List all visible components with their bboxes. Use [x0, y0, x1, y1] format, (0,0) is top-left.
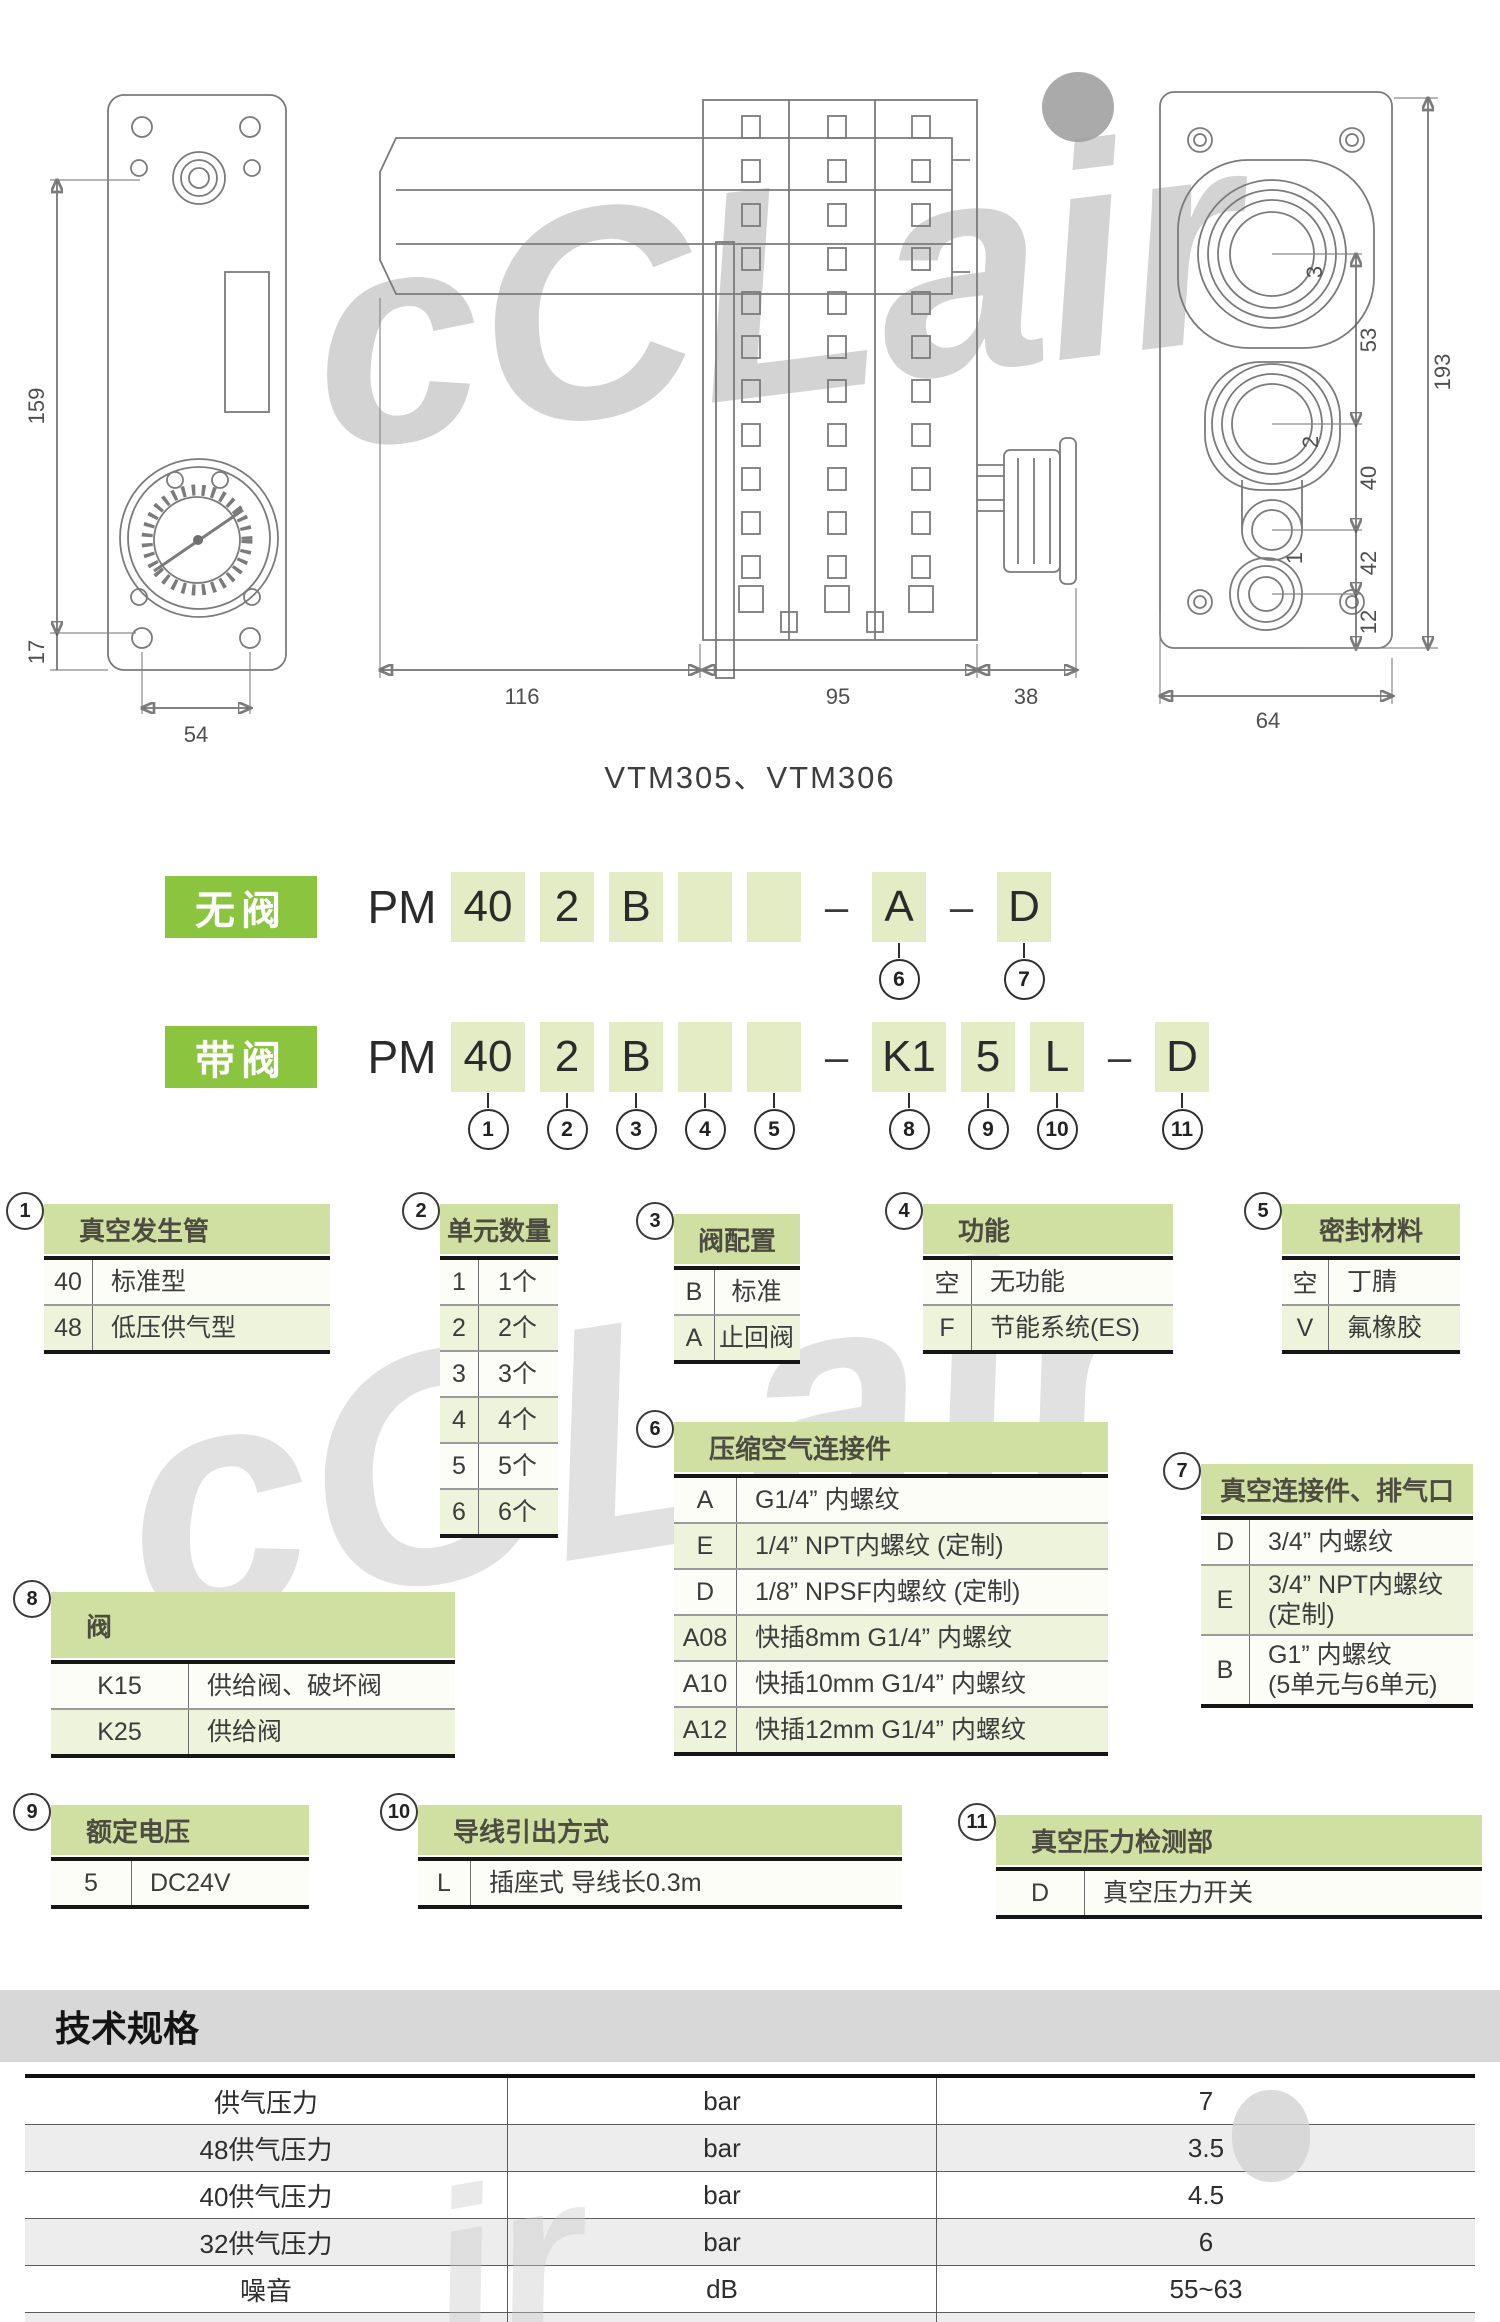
option-row: 5 5个 [440, 1442, 558, 1488]
option-code: D [1201, 1520, 1250, 1564]
code-slot: A 6 [872, 872, 926, 1000]
option-code: 6 [440, 1490, 479, 1534]
position-circle: 7 [1004, 959, 1045, 1000]
spec-unit: ℃ [508, 2313, 937, 2322]
spec-item-label: 温度范围 [25, 2313, 508, 2322]
spec-item-label: 噪音 [25, 2266, 508, 2312]
side-view-dimensions: 159 17 54 [24, 180, 250, 747]
valve-tag-no-valve: 无阀 [165, 876, 317, 938]
option-row: 40 标准型 [44, 1260, 330, 1304]
position-circle: 8 [889, 1109, 930, 1150]
table-number-circle: 7 [1163, 1452, 1201, 1490]
model-caption: VTM305、VTM306 [0, 752, 1500, 797]
spec-unit: bar [508, 2172, 937, 2218]
spec-item-label: 40供气压力 [25, 2172, 508, 2218]
code-slot: D 7 [997, 872, 1051, 1000]
option-desc: 6个 [479, 1490, 558, 1534]
code-slot: B [609, 872, 663, 1000]
option-desc: DC24V [132, 1861, 309, 1905]
spec-value: 6 [937, 2219, 1475, 2265]
option-desc: 标准 [715, 1270, 800, 1314]
option-table-title: 额定电压 [51, 1805, 309, 1855]
option-table-body: 空 无功能 F 节能系统(ES) [923, 1256, 1173, 1354]
position-circle: 3 [616, 1109, 657, 1150]
option-desc: 供给阀 [189, 1710, 455, 1754]
option-table-body: L 插座式 导线长0.3m [418, 1857, 902, 1909]
option-desc: 1个 [479, 1260, 558, 1304]
option-row: 5 DC24V [51, 1861, 309, 1905]
option-code: A08 [674, 1616, 737, 1660]
dim-116: 116 [504, 684, 539, 709]
option-table-vacuum-generator: 1 真空发生管 40 标准型 48 低压供气型 [44, 1204, 330, 1354]
code-box: – [1105, 1022, 1135, 1092]
option-table-title: 功能 [923, 1204, 1173, 1254]
option-desc: 氟橡胶 [1329, 1306, 1460, 1350]
dim-159: 159 [24, 388, 49, 425]
option-row: K25 供给阀 [51, 1708, 455, 1754]
option-desc: 止回阀 [715, 1316, 800, 1360]
code-box: K1 [872, 1022, 946, 1092]
option-row: 48 低压供气型 [44, 1304, 330, 1350]
option-desc: 丁腈 [1329, 1260, 1460, 1304]
option-desc: 无功能 [972, 1260, 1173, 1304]
position-circle: 1 [468, 1109, 509, 1150]
code-box: – [947, 872, 977, 942]
option-desc: 5个 [479, 1444, 558, 1488]
option-row: B G1” 内螺纹 (5单元与6单元) [1201, 1634, 1473, 1704]
option-row: A12 快插12mm G1/4” 内螺纹 [674, 1706, 1108, 1752]
option-code: F [923, 1306, 972, 1350]
position-circle: 6 [879, 959, 920, 1000]
spec-row: 32供气压力 bar 6 [25, 2219, 1475, 2266]
option-table-title: 真空发生管 [44, 1204, 330, 1254]
option-table-body: 5 DC24V [51, 1857, 309, 1909]
option-row: K15 供给阀、破坏阀 [51, 1664, 455, 1708]
table-number-circle: 4 [885, 1192, 923, 1230]
connector-line [1056, 1093, 1059, 1108]
table-number-circle: 8 [13, 1580, 51, 1618]
option-code: 2 [440, 1306, 479, 1350]
side-view-drawing [108, 95, 286, 670]
option-row: L 插座式 导线长0.3m [418, 1861, 902, 1905]
option-code: 3 [440, 1352, 479, 1396]
option-row: A 止回阀 [674, 1314, 800, 1360]
option-desc: G1” 内螺纹 (5单元与6单元) [1250, 1636, 1473, 1704]
option-desc: 3个 [479, 1352, 558, 1396]
code-cells: 40 1 2 2 B 3 4 5 – [451, 1022, 1209, 1150]
option-table-body: 40 标准型 48 低压供气型 [44, 1256, 330, 1354]
code-box: B [609, 872, 663, 942]
option-row: A G1/4” 内螺纹 [674, 1478, 1108, 1522]
model-prefix: PM [359, 1030, 445, 1084]
option-code: D [996, 1871, 1085, 1915]
code-box: D [997, 872, 1051, 942]
code-slot: 2 [540, 872, 594, 1000]
option-row: A08 快插8mm G1/4” 内螺纹 [674, 1614, 1108, 1660]
dim-42: 42 [1356, 551, 1381, 575]
option-desc: G1/4” 内螺纹 [737, 1478, 1108, 1522]
option-row: D 3/4” 内螺纹 [1201, 1520, 1473, 1564]
spec-item-label: 32供气压力 [25, 2219, 508, 2265]
connector-line [987, 1093, 990, 1108]
spec-unit: bar [508, 2219, 937, 2265]
datasheet-page: cCLair cCLair ir [0, 0, 1500, 2322]
connector-line [487, 1093, 490, 1108]
option-code: B [1201, 1636, 1250, 1704]
code-box: 40 [451, 872, 525, 942]
front-view-dimensions: 116 95 38 [380, 298, 1076, 709]
option-table-body: B 标准 A 止回阀 [674, 1266, 800, 1364]
option-desc: 真空压力开关 [1085, 1871, 1482, 1915]
code-row-with-valve: 带阀 PM 40 1 2 2 B 3 4 5 [165, 1022, 1209, 1150]
spec-value: 7 [937, 2078, 1475, 2124]
connector-line [908, 1093, 911, 1108]
option-code: A [674, 1316, 715, 1360]
code-slot: K1 8 [872, 1022, 946, 1150]
option-desc: 节能系统(ES) [972, 1306, 1173, 1350]
option-desc: 3/4” NPT内螺纹 (定制) [1250, 1566, 1473, 1634]
position-circle: 11 [1162, 1109, 1203, 1150]
dim-95: 95 [826, 684, 850, 709]
option-desc: 快插10mm G1/4” 内螺纹 [737, 1662, 1108, 1706]
option-desc: 低压供气型 [93, 1306, 330, 1350]
technical-drawings: 159 17 54 [0, 10, 1500, 755]
option-desc: 标准型 [93, 1260, 330, 1304]
option-row: A10 快插10mm G1/4” 内螺纹 [674, 1660, 1108, 1706]
option-row: 4 4个 [440, 1396, 558, 1442]
option-code: A [674, 1478, 737, 1522]
option-row: 6 6个 [440, 1488, 558, 1534]
option-row: 空 无功能 [923, 1260, 1173, 1304]
option-table-function: 4 功能 空 无功能 F 节能系统(ES) [923, 1204, 1173, 1354]
valve-tag-with-valve: 带阀 [165, 1026, 317, 1088]
code-box: D [1155, 1022, 1209, 1092]
silencer-drawing [380, 138, 970, 294]
option-row: 空 丁腈 [1282, 1260, 1460, 1304]
model-prefix: PM [359, 880, 445, 934]
spec-item-label: 48供气压力 [25, 2125, 508, 2171]
code-box: A [872, 872, 926, 942]
option-code: D [674, 1570, 737, 1614]
table-number-circle: 6 [636, 1410, 674, 1448]
code-slot: 40 [451, 872, 525, 1000]
spec-value: 4.5 [937, 2172, 1475, 2218]
option-table-title: 阀 [51, 1592, 455, 1658]
position-circle: 5 [754, 1109, 795, 1150]
spec-unit: dB [508, 2266, 937, 2312]
option-code: 空 [1282, 1260, 1329, 1304]
spec-value: -20~80 [937, 2313, 1475, 2322]
code-slot: 2 2 [540, 1022, 594, 1150]
option-table-title: 阀配置 [674, 1214, 800, 1264]
connector-line [704, 1093, 707, 1108]
code-slot: – [816, 872, 857, 1000]
code-slot: – [941, 872, 982, 1000]
connector-line [1181, 1093, 1184, 1108]
option-code: 1 [440, 1260, 479, 1304]
option-table-title: 导线引出方式 [418, 1805, 902, 1855]
gauge-knob-drawing [977, 438, 1076, 584]
spec-value: 55~63 [937, 2266, 1475, 2312]
option-row: 3 3个 [440, 1350, 558, 1396]
code-box: B [609, 1022, 663, 1092]
code-box [747, 1022, 801, 1092]
option-table-body: A G1/4” 内螺纹 E 1/4” NPT内螺纹 (定制) D 1/8” NP… [674, 1474, 1108, 1756]
option-code: L [418, 1861, 471, 1905]
option-table-body: D 3/4” 内螺纹 E 3/4” NPT内螺纹 (定制) B G1” 内螺纹 … [1201, 1516, 1473, 1708]
option-row: D 真空压力开关 [996, 1871, 1482, 1915]
option-table-title: 单元数量 [440, 1204, 558, 1254]
table-number-circle: 11 [958, 1803, 996, 1841]
stack-windows [739, 116, 933, 632]
spec-unit: bar [508, 2125, 937, 2171]
dim-38: 38 [1014, 684, 1038, 709]
option-code: V [1282, 1306, 1329, 1350]
code-slot [678, 872, 732, 1000]
option-table-title: 真空连接件、排气口 [1201, 1464, 1473, 1514]
connector-line [635, 1093, 638, 1108]
connector-line [566, 1093, 569, 1108]
option-table-valve: 8 阀 K15 供给阀、破坏阀 K25 供给阀 [51, 1592, 455, 1758]
dim-40: 40 [1356, 466, 1381, 490]
option-table-body: 1 1个 2 2个 3 3个 4 4个 5 5个 6 6个 [440, 1256, 558, 1538]
dim-53: 53 [1356, 328, 1381, 352]
port-label-2: 2 [1298, 436, 1323, 448]
option-row: V 氟橡胶 [1282, 1304, 1460, 1350]
code-box: L [1030, 1022, 1084, 1092]
option-row: F 节能系统(ES) [923, 1304, 1173, 1350]
option-desc: 快插8mm G1/4” 内螺纹 [737, 1616, 1108, 1660]
option-table-body: D 真空压力开关 [996, 1867, 1482, 1919]
code-slot: 5 9 [961, 1022, 1015, 1150]
code-slot: D 11 [1155, 1022, 1209, 1150]
option-desc: 2个 [479, 1306, 558, 1350]
code-slot [747, 872, 801, 1000]
connector-line [898, 943, 901, 958]
dim-193: 193 [1430, 354, 1455, 391]
code-slot: – [1099, 1022, 1140, 1150]
port-label-3: 3 [1302, 266, 1327, 278]
module-stack-drawing [703, 100, 1076, 678]
option-code: A12 [674, 1708, 737, 1752]
spec-unit: bar [508, 2078, 937, 2124]
option-table-air-connector: 6 压缩空气连接件 A G1/4” 内螺纹 E 1/4” NPT内螺纹 (定制)… [674, 1422, 1108, 1756]
option-code: 5 [51, 1861, 132, 1905]
code-cells: 40 2 B – [451, 872, 1051, 1000]
code-slot: B 3 [609, 1022, 663, 1150]
port-label-1: 1 [1282, 552, 1307, 564]
position-circle: 10 [1037, 1109, 1078, 1150]
option-table-rated-voltage: 9 额定电压 5 DC24V [51, 1805, 309, 1909]
table-number-circle: 1 [6, 1192, 44, 1230]
code-box [747, 872, 801, 942]
option-code: E [674, 1524, 737, 1568]
option-table-body: 空 丁腈 V 氟橡胶 [1282, 1256, 1460, 1354]
option-table-pressure-detect: 11 真空压力检测部 D 真空压力开关 [996, 1815, 1482, 1919]
option-table-seal-material: 5 密封材料 空 丁腈 V 氟橡胶 [1282, 1204, 1460, 1354]
code-box: 2 [540, 872, 594, 942]
code-box: – [822, 1022, 852, 1092]
position-circle: 9 [968, 1109, 1009, 1150]
code-slot: 4 [678, 1022, 732, 1150]
option-desc: 1/8” NPSF内螺纹 (定制) [737, 1570, 1108, 1614]
option-desc: 3/4” 内螺纹 [1250, 1520, 1473, 1564]
option-row: D 1/8” NPSF内螺纹 (定制) [674, 1568, 1108, 1614]
spec-section-header: 技术规格 [0, 1990, 1500, 2062]
spec-section-title: 技术规格 [55, 2000, 199, 2052]
dim-54: 54 [184, 722, 208, 747]
spec-row: 噪音 dB 55~63 [25, 2266, 1475, 2313]
code-box: – [822, 872, 852, 942]
option-table-lead-wire: 10 导线引出方式 L 插座式 导线长0.3m [418, 1805, 902, 1909]
code-box [678, 1022, 732, 1092]
option-row: E 1/4” NPT内螺纹 (定制) [674, 1522, 1108, 1568]
watermark-blob [1232, 2090, 1310, 2182]
option-code: 4 [440, 1398, 479, 1442]
position-circle: 4 [685, 1109, 726, 1150]
table-number-circle: 10 [380, 1793, 418, 1831]
code-box: 40 [451, 1022, 525, 1092]
dim-17: 17 [24, 640, 49, 664]
option-table-title: 密封材料 [1282, 1204, 1460, 1254]
table-number-circle: 2 [402, 1192, 440, 1230]
table-number-circle: 5 [1244, 1192, 1282, 1230]
connector-line [773, 1093, 776, 1108]
option-row: 1 1个 [440, 1260, 558, 1304]
option-desc: 快插12mm G1/4” 内螺纹 [737, 1708, 1108, 1752]
code-slot: 5 [747, 1022, 801, 1150]
option-code: K25 [51, 1710, 189, 1754]
option-row: E 3/4” NPT内螺纹 (定制) [1201, 1564, 1473, 1634]
code-slot: 40 1 [451, 1022, 525, 1150]
spec-value: 3.5 [937, 2125, 1475, 2171]
dim-64: 64 [1256, 708, 1280, 733]
code-box: 5 [961, 1022, 1015, 1092]
code-slot: L 10 [1030, 1022, 1084, 1150]
option-desc: 插座式 导线长0.3m [471, 1861, 902, 1905]
option-table-body: K15 供给阀、破坏阀 K25 供给阀 [51, 1660, 455, 1758]
option-desc: 供给阀、破坏阀 [189, 1664, 455, 1708]
option-row: 2 2个 [440, 1304, 558, 1350]
option-code: 40 [44, 1260, 93, 1304]
table-number-circle: 9 [13, 1793, 51, 1831]
code-row-no-valve: 无阀 PM 40 2 B [165, 872, 1051, 1000]
option-desc: 4个 [479, 1398, 558, 1442]
option-row: B 标准 [674, 1270, 800, 1314]
option-code: 48 [44, 1306, 93, 1350]
option-table-valve-config: 3 阀配置 B 标准 A 止回阀 [674, 1214, 800, 1364]
option-table-title: 真空压力检测部 [996, 1815, 1482, 1865]
option-code: 空 [923, 1260, 972, 1304]
option-code: B [674, 1270, 715, 1314]
table-number-circle: 3 [636, 1202, 674, 1240]
code-box [678, 872, 732, 942]
connector-line [1023, 943, 1026, 958]
code-slot: – [816, 1022, 857, 1150]
option-code: K15 [51, 1664, 189, 1708]
option-code: 5 [440, 1444, 479, 1488]
spec-item-label: 供气压力 [25, 2078, 508, 2124]
dim-12: 12 [1356, 610, 1381, 634]
option-table-vacuum-connector: 7 真空连接件、排气口 D 3/4” 内螺纹 E 3/4” NPT内螺纹 (定制… [1201, 1464, 1473, 1708]
spec-row: 温度范围 ℃ -20~80 [25, 2313, 1475, 2322]
option-table-unit-count: 2 单元数量 1 1个 2 2个 3 3个 4 4个 5 5个 6 6个 [440, 1204, 558, 1538]
option-code: E [1201, 1566, 1250, 1634]
position-circle: 2 [547, 1109, 588, 1150]
option-code: A10 [674, 1662, 737, 1706]
option-desc: 1/4” NPT内螺纹 (定制) [737, 1524, 1108, 1568]
code-box: 2 [540, 1022, 594, 1092]
option-table-title: 压缩空气连接件 [674, 1422, 1108, 1472]
